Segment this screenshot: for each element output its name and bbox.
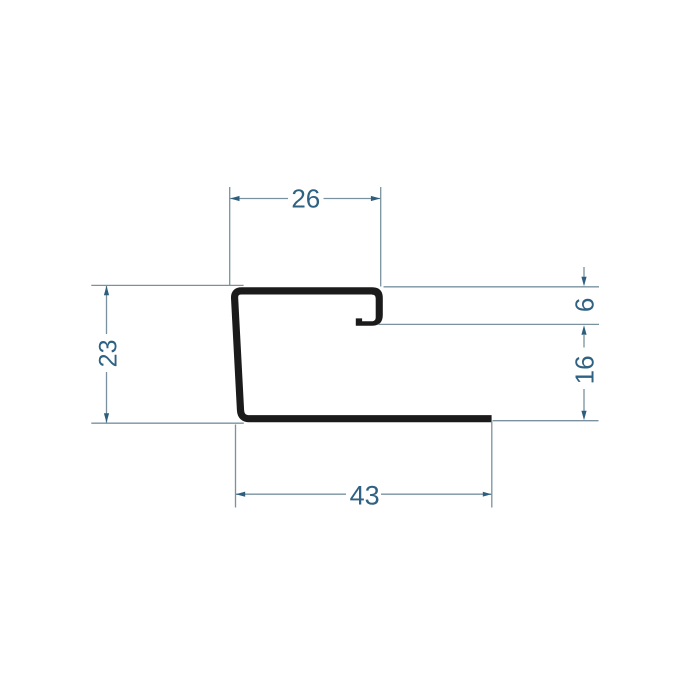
svg-text:23: 23 xyxy=(95,339,123,367)
svg-text:43: 43 xyxy=(350,481,380,511)
svg-text:26: 26 xyxy=(291,184,320,214)
svg-text:16: 16 xyxy=(569,355,599,384)
svg-text:6: 6 xyxy=(569,298,599,312)
